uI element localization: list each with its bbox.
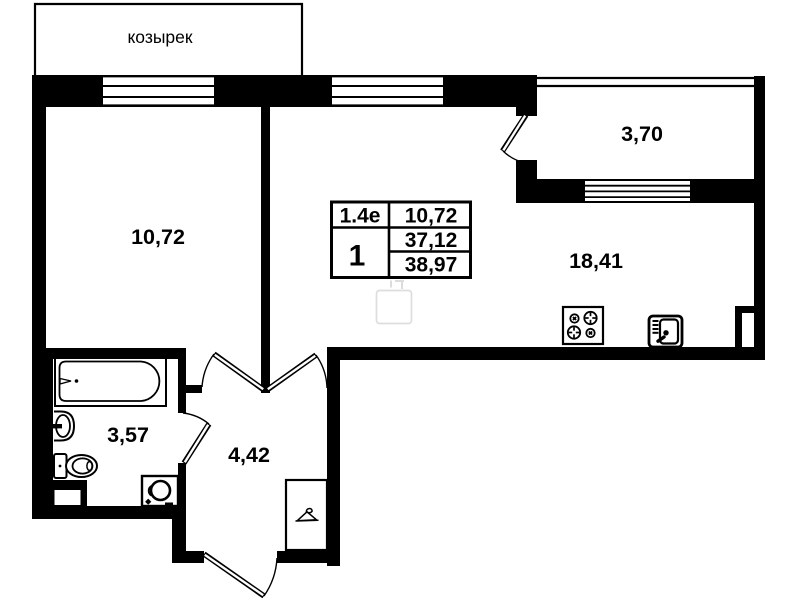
svg-text:10,72: 10,72: [131, 225, 185, 249]
svg-text:3,70: 3,70: [621, 122, 663, 146]
svg-text:18,41: 18,41: [569, 249, 623, 273]
svg-text:38,97: 38,97: [405, 254, 458, 277]
svg-text:1.4е: 1.4е: [340, 205, 381, 228]
svg-text:4,42: 4,42: [228, 443, 270, 467]
svg-text:1: 1: [349, 240, 366, 273]
svg-text:козырек: козырек: [127, 27, 192, 47]
svg-text:10,72: 10,72: [405, 205, 458, 228]
svg-text:3,57: 3,57: [107, 423, 149, 447]
svg-text:37,12: 37,12: [405, 229, 458, 252]
